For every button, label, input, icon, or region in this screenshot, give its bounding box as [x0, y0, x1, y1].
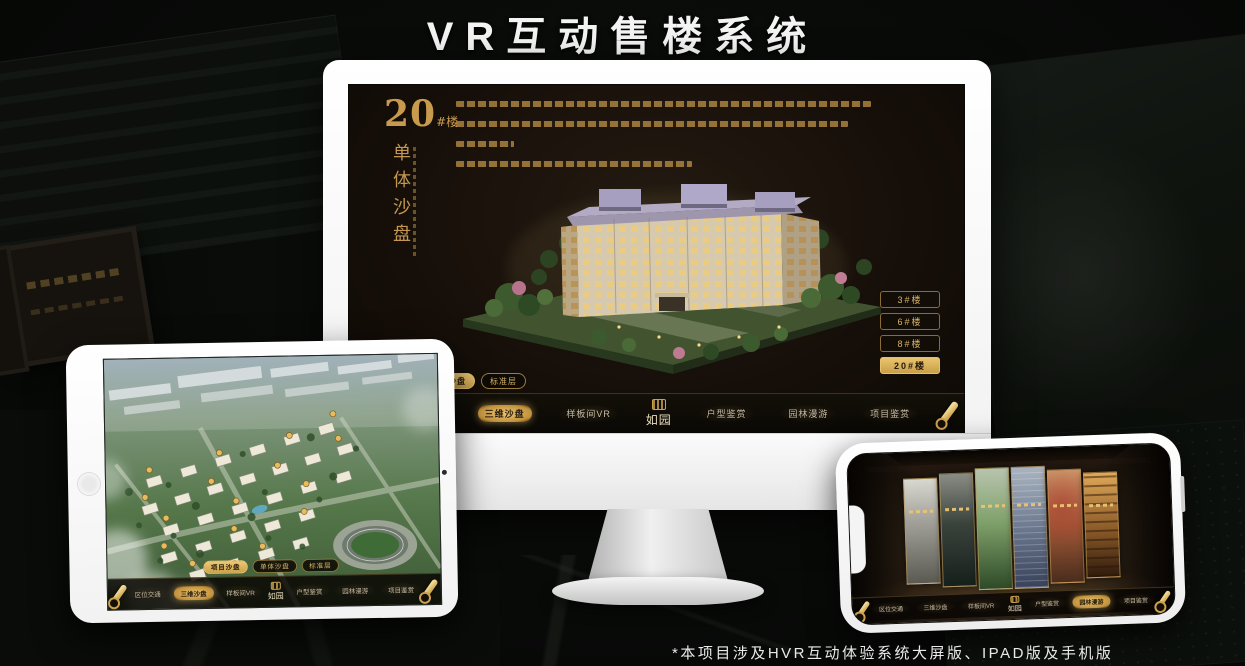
- nav-item-model-room-vr[interactable]: 样板间VR: [961, 598, 1002, 612]
- gallery-panel-courtyard[interactable]: [903, 478, 941, 585]
- nav-item-3d-sandtable[interactable]: 三维沙盘: [478, 405, 532, 422]
- footnote: *本项目涉及HVR互动体验系统大屏版、IPAD版及手机版: [672, 642, 1113, 663]
- page-title: VR互动售楼系统: [0, 4, 1245, 62]
- nav-item-3d-sandtable[interactable]: 三维沙盘: [173, 586, 213, 601]
- building-number: 20: [384, 93, 436, 135]
- tablet-device: 项目沙盘 单体沙盘 标准层 区位交通 三维沙盘 样板间VR 如园 户型鉴赏 园林…: [66, 339, 459, 624]
- floor-button-group: 3#楼 6#楼 8#楼 20#楼: [880, 291, 940, 374]
- tab-single-sandtable[interactable]: 单体沙盘: [253, 559, 298, 573]
- brand-logo[interactable]: 如园: [1007, 595, 1022, 613]
- nav-item-project-gallery[interactable]: 项目鉴赏: [1117, 593, 1155, 607]
- nav-item-floorplans[interactable]: 户型鉴赏: [700, 405, 754, 422]
- floor-button-20[interactable]: 20#楼: [880, 357, 940, 374]
- nav-item-model-room-vr[interactable]: 样板间VR: [559, 405, 618, 422]
- tablet-tab-row: 项目沙盘 单体沙盘 标准层: [203, 559, 339, 574]
- gallery-panel-autumn[interactable]: [1047, 469, 1085, 584]
- brand-logo-text: 如园: [268, 591, 284, 602]
- floor-button-8[interactable]: 8#楼: [880, 335, 940, 352]
- building-subtitle: 单体沙盘: [387, 143, 413, 251]
- tablet-camera: [77, 472, 101, 496]
- brand-logo-text: 如园: [1008, 603, 1022, 613]
- gallery-panel-garden[interactable]: [975, 467, 1013, 590]
- description-line: [456, 121, 848, 127]
- background-award-plaque-2: [0, 245, 30, 384]
- nav-item-project-gallery[interactable]: 项目鉴赏: [381, 582, 421, 597]
- gallery-panel-building[interactable]: [1011, 466, 1049, 589]
- gallery-panel-interior[interactable]: [939, 472, 977, 587]
- brand-logo[interactable]: 如园: [646, 399, 672, 428]
- panel-caption: [909, 510, 933, 514]
- nav-item-location[interactable]: 区位交通: [872, 602, 910, 616]
- tab-project-sandtable[interactable]: 项目沙盘: [203, 560, 248, 574]
- tab-standard-floor[interactable]: 标准层: [481, 373, 526, 389]
- page: VR互动售楼系统 20#楼 单体沙盘: [0, 0, 1245, 666]
- nav-item-3d-sandtable[interactable]: 三维沙盘: [916, 600, 954, 614]
- nav-item-model-room-vr[interactable]: 样板间VR: [219, 585, 262, 600]
- seal-icon: [652, 399, 666, 410]
- scroll-left-icon[interactable]: [856, 600, 871, 619]
- building-headline: 20#楼: [384, 93, 458, 135]
- nav-item-garden-tour[interactable]: 园林漫游: [335, 583, 375, 598]
- building-unit: #楼: [436, 115, 458, 129]
- panel-caption: [981, 504, 1005, 508]
- nav-item-project-gallery[interactable]: 项目鉴赏: [863, 405, 917, 422]
- brand-logo[interactable]: 如园: [267, 582, 283, 602]
- monitor-stand: [588, 509, 728, 581]
- scroll-right-icon[interactable]: [1156, 590, 1171, 609]
- tablet-navbar: 区位交通 三维沙盘 样板间VR 如园 户型鉴赏 园林漫游 项目鉴赏: [108, 573, 441, 610]
- gallery-panel-shelves[interactable]: [1083, 471, 1121, 578]
- tablet-screen: 项目沙盘 单体沙盘 标准层 区位交通 三维沙盘 样板间VR 如园 户型鉴赏 园林…: [103, 353, 442, 611]
- scroll-right-icon[interactable]: [938, 401, 960, 427]
- tab-standard-floor[interactable]: 标准层: [302, 559, 339, 573]
- nav-item-location[interactable]: 区位交通: [128, 587, 168, 602]
- panel-caption: [945, 507, 969, 511]
- nav-item-garden-tour[interactable]: 园林漫游: [781, 405, 835, 422]
- seal-icon: [1010, 595, 1019, 602]
- panel-caption: [1017, 503, 1041, 507]
- phone-device: 区位交通 三维沙盘 样板间VR 如园 户型鉴赏 园林漫游 项目鉴赏: [835, 432, 1186, 634]
- panel-caption: [1089, 504, 1113, 508]
- nav-item-floorplans[interactable]: 户型鉴赏: [1028, 596, 1066, 610]
- monitor-stand-base: [552, 577, 764, 605]
- phone-screen: 区位交通 三维沙盘 样板间VR 如园 户型鉴赏 园林漫游 项目鉴赏: [846, 442, 1176, 625]
- description-line: [456, 101, 871, 107]
- nav-item-floorplans[interactable]: 户型鉴赏: [289, 584, 329, 599]
- phone-side-button: [1180, 476, 1185, 512]
- seal-icon: [270, 582, 280, 590]
- panel-caption: [1053, 503, 1077, 507]
- building-render: [449, 147, 889, 389]
- nav-item-garden-tour[interactable]: 园林漫游: [1072, 595, 1110, 609]
- background-aerial-right: [952, 33, 1245, 469]
- building-subtitle-en-deco: [413, 147, 416, 257]
- scroll-left-icon[interactable]: [110, 584, 128, 605]
- brand-logo-text: 如园: [646, 411, 672, 428]
- floor-button-6[interactable]: 6#楼: [880, 313, 940, 330]
- tablet-dot: [442, 469, 447, 474]
- phone-notch: [849, 505, 866, 573]
- floor-button-3[interactable]: 3#楼: [880, 291, 940, 308]
- scroll-right-icon[interactable]: [421, 578, 439, 599]
